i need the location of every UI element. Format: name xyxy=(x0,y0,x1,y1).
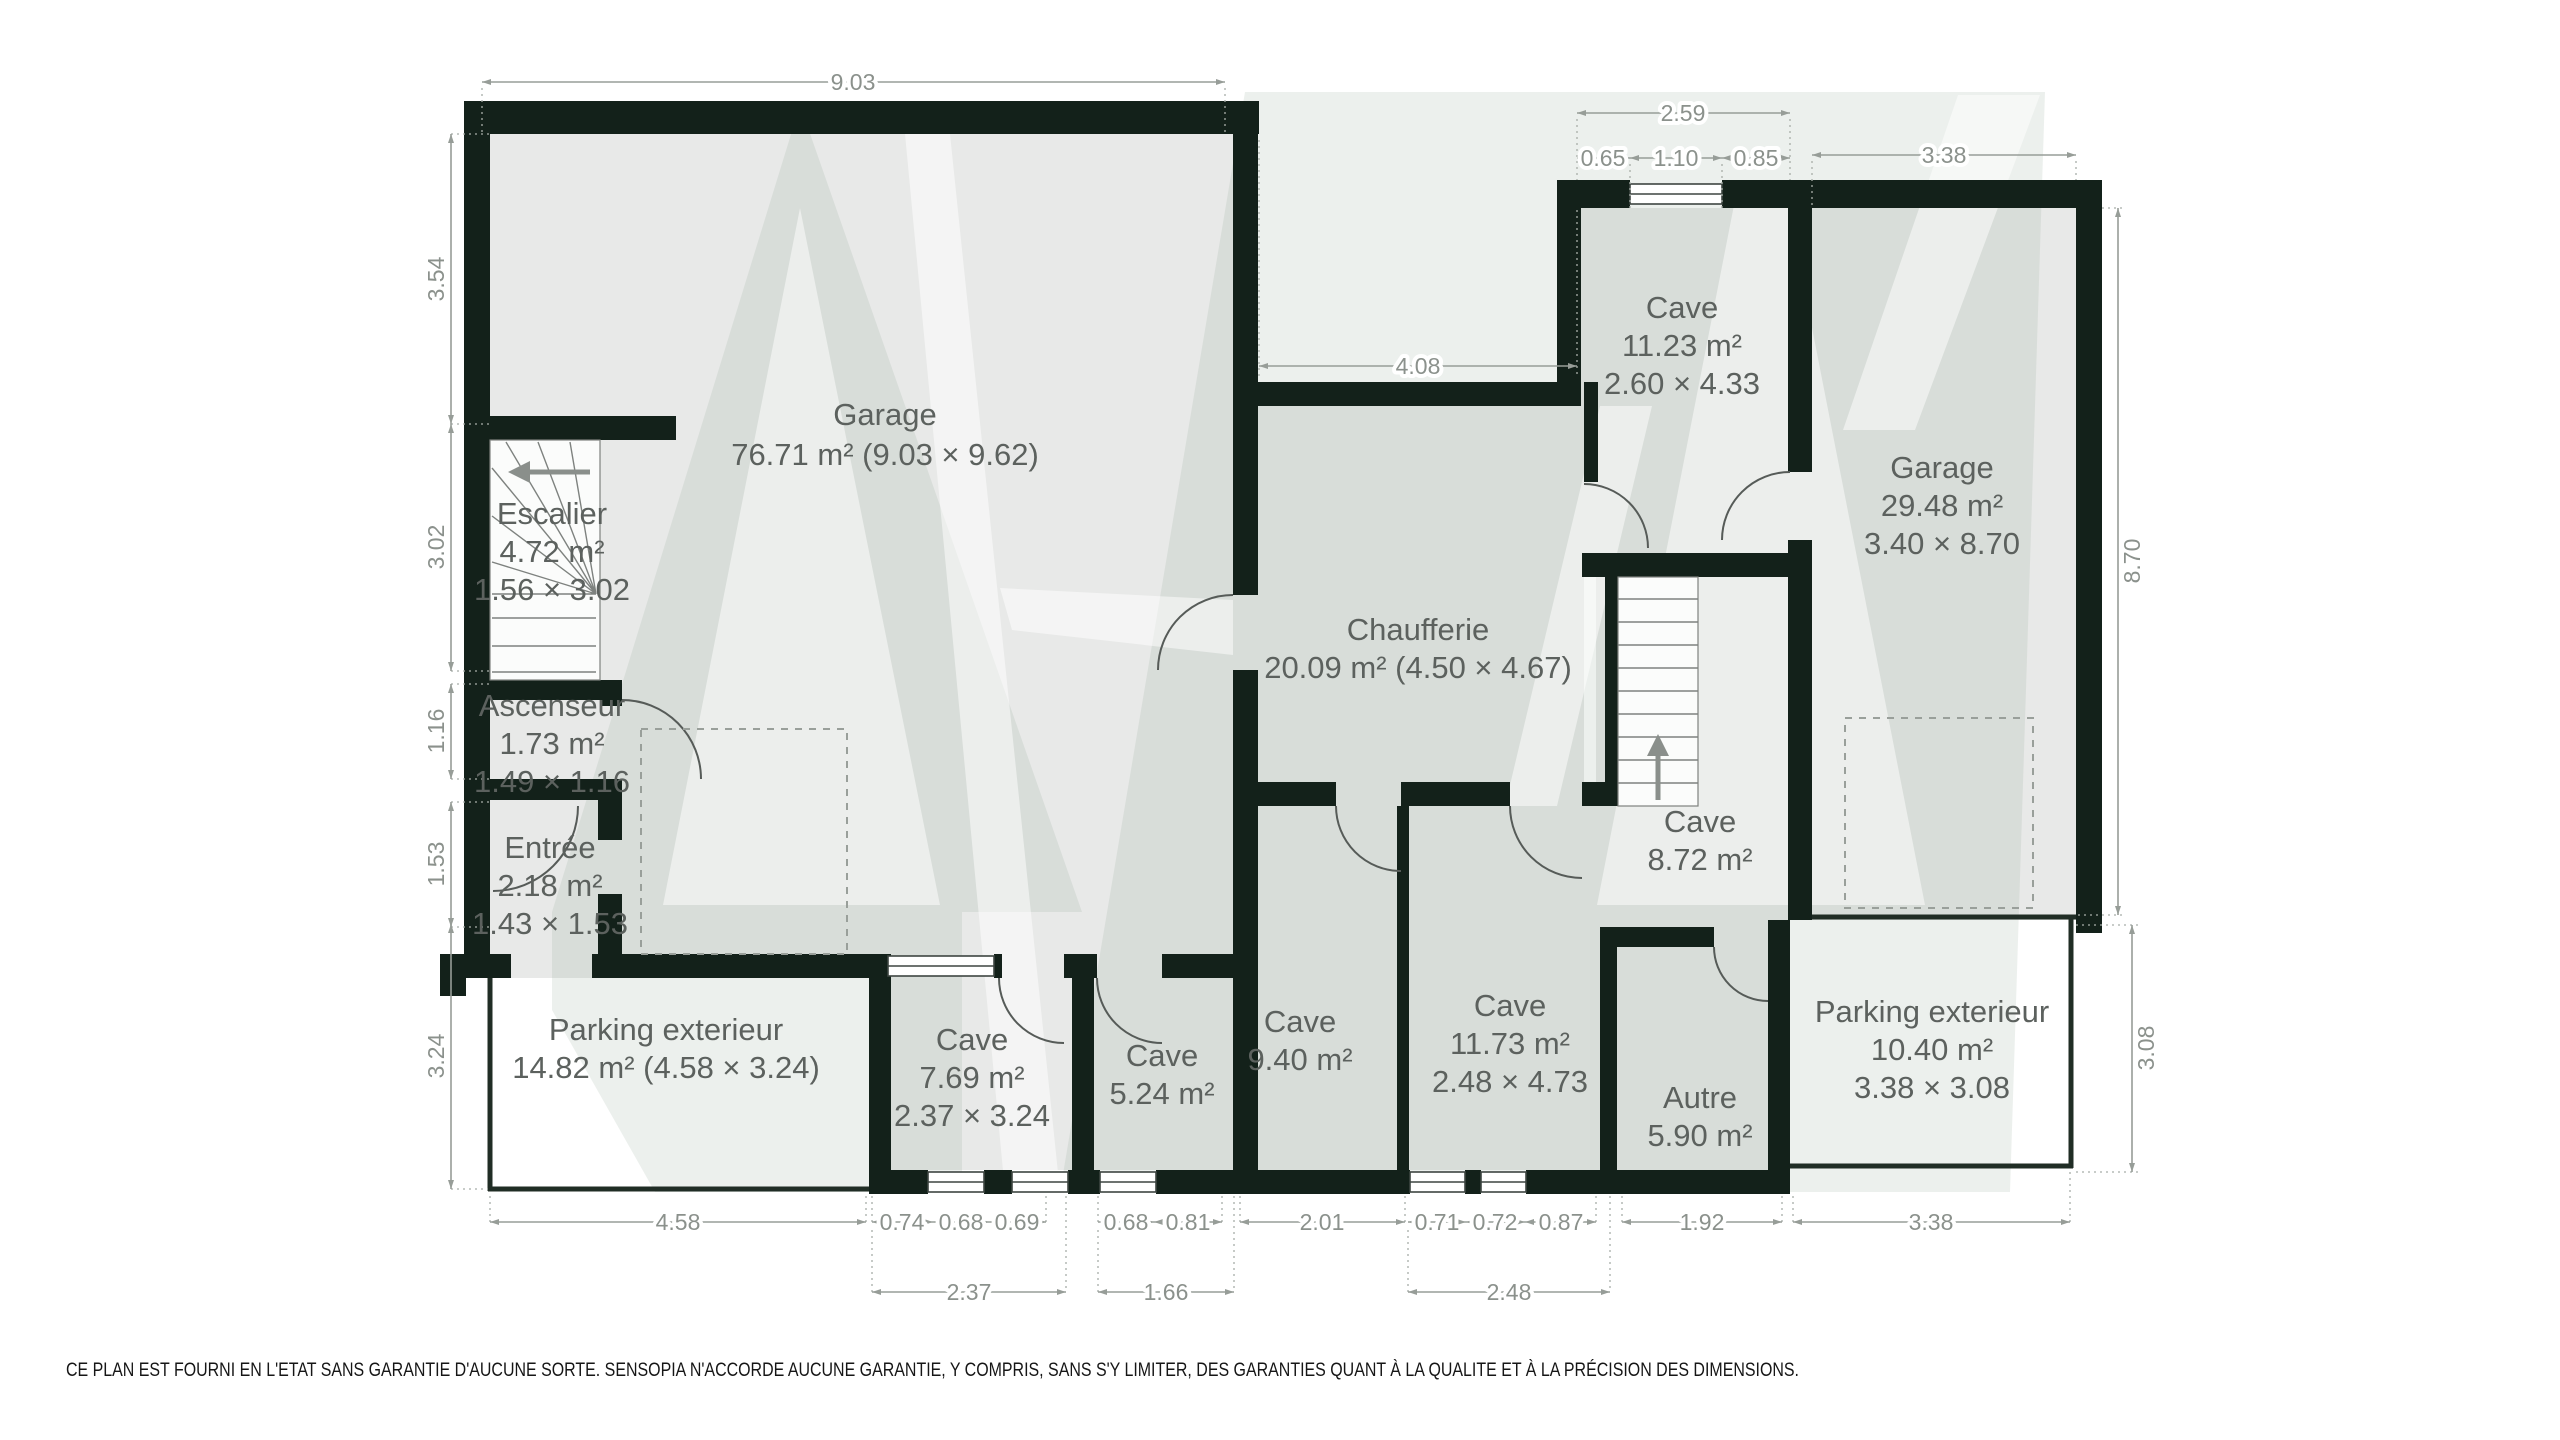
dim-bottom-h: 0.87 xyxy=(1539,1209,1584,1235)
room-entree-size: 1.43 × 1.53 xyxy=(472,906,628,941)
room-parking-right-name: Parking exterieur xyxy=(1815,994,2049,1029)
dim-bottom2-cave524: 1.66 xyxy=(1144,1279,1189,1305)
dim-bottom-g: 0.72 xyxy=(1473,1209,1518,1235)
dim-bottom-c: 0.69 xyxy=(995,1209,1040,1235)
room-entree-name: Entrée xyxy=(504,830,595,865)
window-icon xyxy=(1100,1172,1156,1192)
dim-bottom2-cave1173: 2.48 xyxy=(1487,1279,1532,1305)
room-cave-940-name: Cave xyxy=(1264,1004,1336,1039)
disclaimer-text: CE PLAN EST FOURNI EN L'ETAT SANS GARANT… xyxy=(66,1360,1799,1381)
window-icon xyxy=(1012,1172,1068,1192)
room-cave-769-size: 2.37 × 3.24 xyxy=(894,1098,1050,1133)
dim-bottom-corridor: 2.01 xyxy=(1300,1209,1345,1235)
dim-bottom-f: 0.71 xyxy=(1415,1209,1460,1235)
room-garage-right-area: 29.48 m² xyxy=(1881,488,2003,523)
dim-top-cave-b: 1.10 xyxy=(1654,145,1699,171)
room-autre-name: Autre xyxy=(1663,1080,1737,1115)
dim-top-garage: 9.03 xyxy=(831,69,876,95)
dim-bottom-autre: 1.92 xyxy=(1680,1209,1725,1235)
window-icon xyxy=(1410,1172,1465,1192)
dim-top-cave: 2.59 xyxy=(1661,100,1706,126)
room-cave-centre-name: Cave xyxy=(1664,804,1736,839)
room-garage-right-name: Garage xyxy=(1890,450,1993,485)
room-ascenseur-name: Ascenseur xyxy=(479,688,625,723)
dim-top-garage-right: 3.38 xyxy=(1922,142,1967,168)
room-cave-1173-size: 2.48 × 4.73 xyxy=(1432,1064,1588,1099)
room-cave-524-area: 5.24 m² xyxy=(1109,1076,1214,1111)
room-escalier-name: Escalier xyxy=(497,496,607,531)
dim-top-cave-c: 0.85 xyxy=(1734,145,1779,171)
room-cave-769-name: Cave xyxy=(936,1022,1008,1057)
window-icon xyxy=(888,956,994,976)
dim-chaufferie-top: 4.08 xyxy=(1396,353,1441,379)
room-garage-left-name: Garage xyxy=(833,397,936,432)
floor-plan-svg: 9.03 2.59 0.65 1.10 0.85 3.38 4.08 3.54 … xyxy=(0,0,2560,1440)
room-parking-left-details: 14.82 m² (4.58 × 3.24) xyxy=(512,1050,820,1085)
room-cave-940-area: 9.40 m² xyxy=(1247,1042,1352,1077)
window-icon xyxy=(1630,184,1722,204)
room-parking-right-size: 3.38 × 3.08 xyxy=(1854,1070,2010,1105)
dim-bottom-d: 0.68 xyxy=(1104,1209,1149,1235)
dim-right-a: 8.70 xyxy=(2119,539,2145,584)
room-cave-769-area: 7.69 m² xyxy=(919,1060,1024,1095)
stair-right xyxy=(1618,577,1698,806)
room-parking-left-name: Parking exterieur xyxy=(549,1012,783,1047)
dim-left-a: 3.54 xyxy=(423,256,449,301)
room-cave-centre-area: 8.72 m² xyxy=(1647,842,1752,877)
window-icon xyxy=(928,1172,984,1192)
room-cave-524-name: Cave xyxy=(1126,1038,1198,1073)
room-parking-right-area: 10.40 m² xyxy=(1871,1032,1993,1067)
room-entree-area: 2.18 m² xyxy=(497,868,602,903)
window-icon xyxy=(1481,1172,1526,1192)
room-escalier-size: 1.56 × 3.02 xyxy=(474,572,630,607)
room-ascenseur-size: 1.49 × 1.16 xyxy=(474,764,630,799)
room-cave-1173-name: Cave xyxy=(1474,988,1546,1023)
room-cave-nord-area: 11.23 m² xyxy=(1622,328,1742,363)
dim-bottom2-cave769: 2.37 xyxy=(947,1279,992,1305)
dim-top-cave-a: 0.65 xyxy=(1581,145,1626,171)
floor-plan-page: 9.03 2.59 0.65 1.10 0.85 3.38 4.08 3.54 … xyxy=(0,0,2560,1440)
dim-right-b: 3.08 xyxy=(2133,1026,2159,1071)
room-cave-1173-area: 11.73 m² xyxy=(1450,1026,1570,1061)
dim-bottom-e: 0.81 xyxy=(1166,1209,1211,1235)
dim-left-b: 3.02 xyxy=(423,525,449,570)
room-cave-nord-name: Cave xyxy=(1646,290,1718,325)
room-garage-left-details: 76.71 m² (9.03 × 9.62) xyxy=(731,437,1039,472)
room-cave-nord-size: 2.60 × 4.33 xyxy=(1604,366,1760,401)
dim-bottom-b: 0.68 xyxy=(939,1209,984,1235)
room-escalier-area: 4.72 m² xyxy=(499,534,604,569)
room-ascenseur-area: 1.73 m² xyxy=(499,726,604,761)
dim-left-e: 3.24 xyxy=(423,1033,449,1078)
room-autre-area: 5.90 m² xyxy=(1647,1118,1752,1153)
dim-left-c: 1.16 xyxy=(423,709,449,754)
dim-bottom-parking-right: 3.38 xyxy=(1909,1209,1954,1235)
dim-bottom-parking-left: 4.58 xyxy=(656,1209,701,1235)
room-chaufferie-name: Chaufferie xyxy=(1347,612,1489,647)
dim-bottom-a: 0.74 xyxy=(880,1209,925,1235)
dim-left-d: 1.53 xyxy=(423,842,449,887)
room-garage-right-size: 3.40 × 8.70 xyxy=(1864,526,2020,561)
room-chaufferie-details: 20.09 m² (4.50 × 4.67) xyxy=(1264,650,1572,685)
